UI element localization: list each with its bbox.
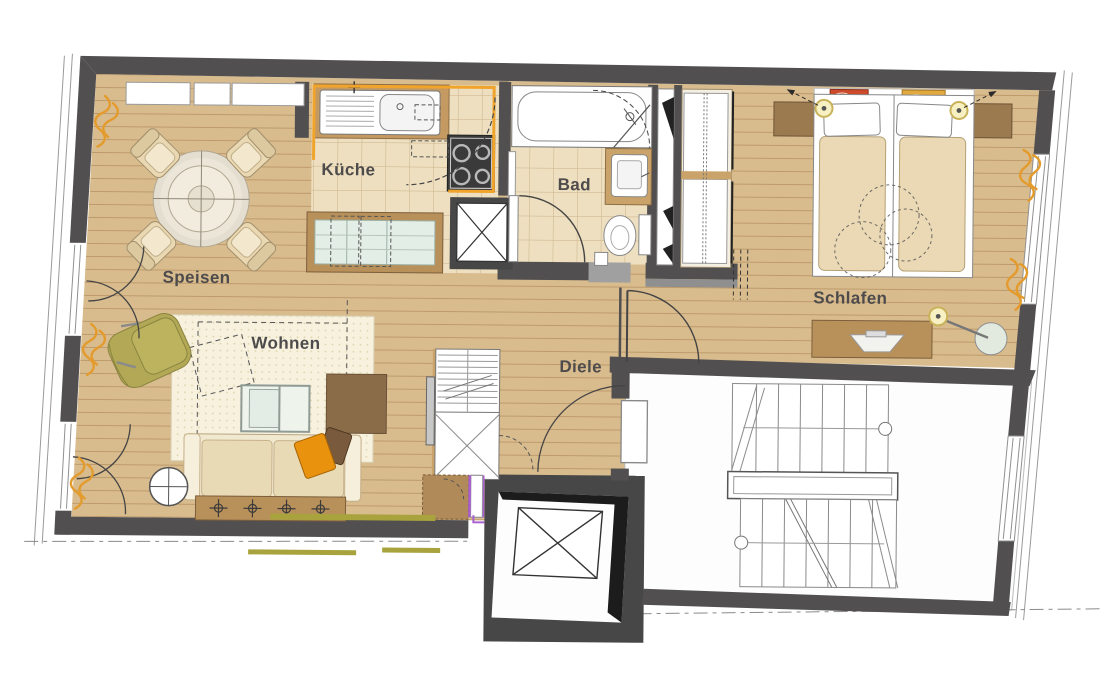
coffee-table: [241, 385, 309, 432]
hall-wardrobe: [432, 349, 500, 480]
elevator-car: [513, 508, 603, 579]
room-label-wohnen: Wohnen: [251, 333, 320, 353]
olive-strip-outer: [382, 547, 440, 553]
double-bed: [813, 94, 975, 278]
room-label-bad: Bad: [558, 175, 591, 194]
elevator: [483, 474, 644, 642]
bath-side-cabinet: [657, 89, 675, 265]
window-left-upper: [69, 245, 81, 334]
pillow: [896, 103, 952, 137]
site-boundary-line: [24, 537, 470, 545]
tv-panel: [426, 377, 435, 445]
nightstand-right: [970, 104, 1012, 138]
stair-landing-rail: [728, 472, 898, 500]
nightstand-left: [774, 102, 816, 136]
side-table-round: [150, 467, 188, 505]
entry-door-accent: [469, 475, 484, 522]
bathtub: [512, 86, 653, 148]
plan-root: Speisen Küche Bad Schlafen Wohnen Diele: [23, 53, 1106, 646]
stove: [447, 135, 494, 191]
window-left-lower: [60, 424, 71, 509]
wall-under-wardrobe-edge: [645, 279, 737, 288]
room-label-kueche: Küche: [321, 160, 375, 179]
floor-plan-canvas: Speisen Küche Bad Schlafen Wohnen Diele: [0, 0, 1110, 675]
room-label-diele: Diele: [559, 357, 602, 376]
bedroom-wardrobe: [681, 89, 734, 267]
room-label-speisen: Speisen: [162, 268, 230, 288]
floor-plan-svg: Speisen Küche Bad Schlafen Wohnen Diele: [0, 0, 1110, 675]
sideboard: [126, 82, 304, 106]
side-cube-table: [326, 374, 387, 434]
bath-mirror: [508, 152, 515, 198]
desk: [812, 320, 932, 358]
installation-shaft: [457, 203, 508, 261]
wall-stairwell-left-lower: [611, 468, 629, 480]
room-label-schlafen: Schlafen: [813, 288, 887, 308]
staircase: [727, 384, 900, 588]
floor-lamp: [929, 307, 947, 325]
toilet: [604, 214, 651, 255]
washbasin: [605, 148, 651, 204]
floor-drain: [595, 252, 608, 265]
olive-strip-outer: [248, 549, 356, 555]
hall-cabinet-low: [422, 475, 468, 519]
kitchen-island: [307, 212, 444, 273]
